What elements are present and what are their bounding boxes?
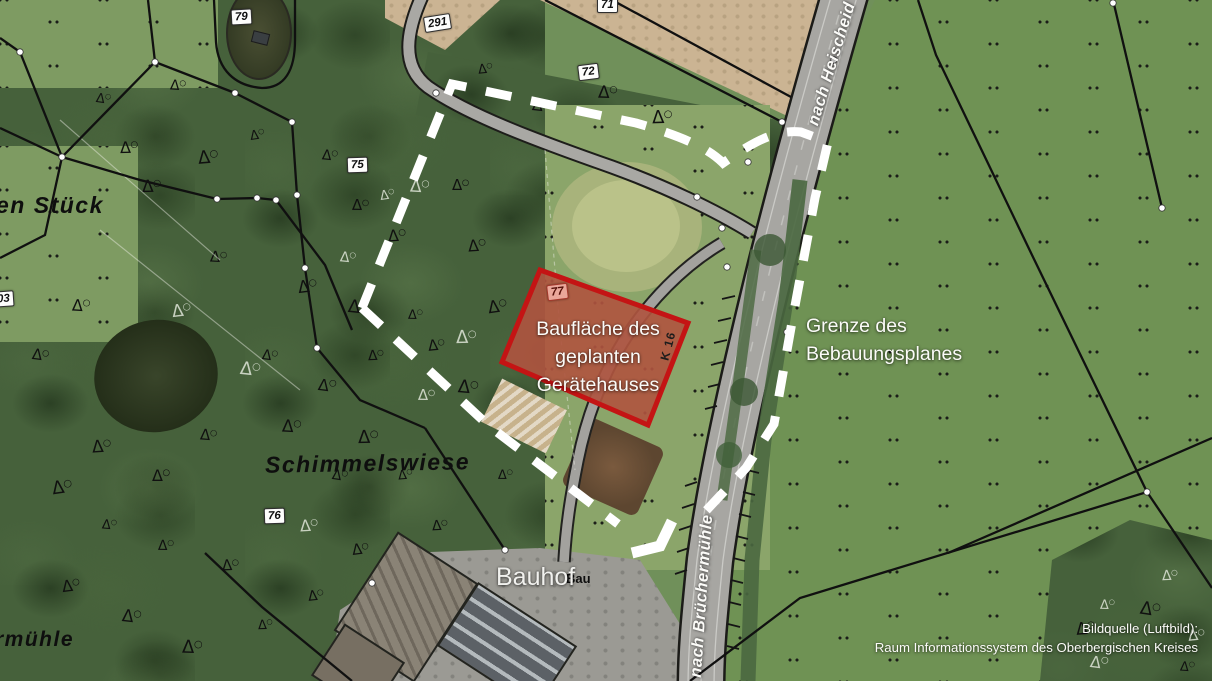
parcel-label-72: 72: [577, 63, 600, 81]
place-label-bauhof: Bauhof: [496, 563, 575, 592]
planning-area-label-line2: geplanten: [536, 343, 660, 371]
place-label-stueck: en Stück: [0, 192, 104, 219]
faint-parcel-lines: [60, 120, 575, 470]
planning-area-label: Baufläche des geplanten Gerätehauses: [536, 315, 660, 399]
attribution-line2: Raum Informationssystem des Oberbergisch…: [875, 639, 1198, 658]
parcel-label-75: 75: [347, 157, 368, 174]
planning-area-label-line1: Baufläche des: [536, 315, 660, 343]
aerial-map: 79 291 71 72 75 77 76 03 nach Heischeid …: [0, 0, 1212, 681]
tree-clump: [754, 234, 786, 266]
parcel-label-71: 71: [597, 0, 618, 13]
boundary-label: Grenze des Bebauungsplanes: [806, 312, 962, 368]
plan-boundary-corner-arrow: [632, 521, 672, 553]
attribution-line1: Bildquelle (Luftbild):: [875, 620, 1198, 639]
place-label-muehle: rmühle: [0, 628, 74, 652]
tree-clump: [716, 442, 742, 468]
parcel-label-03: 03: [0, 290, 14, 307]
boundary-label-line2: Bebauungsplanes: [806, 340, 962, 368]
attribution: Bildquelle (Luftbild): Raum Informations…: [875, 620, 1198, 657]
planning-area-label-line3: Gerätehauses: [536, 371, 660, 399]
place-label-schimmelswiese: Schimmelswiese: [265, 448, 471, 479]
tree-clump: [730, 378, 758, 406]
parcel-label-77: 77: [546, 283, 569, 301]
boundary-label-line1: Grenze des: [806, 312, 962, 340]
side-road: [409, 0, 752, 233]
parcel-label-76: 76: [264, 508, 285, 525]
parcel-label-79: 79: [231, 8, 253, 25]
